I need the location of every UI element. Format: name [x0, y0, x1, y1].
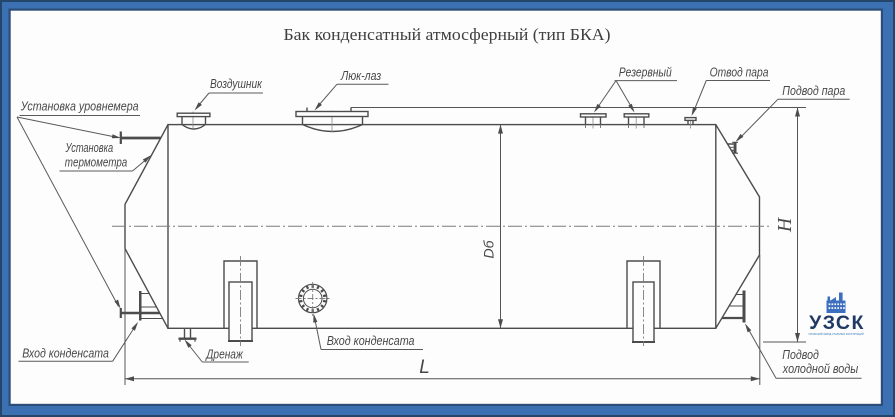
svg-text:Вход конденсата: Вход конденсата	[327, 334, 415, 348]
svg-text:Dб: Dб	[481, 239, 497, 258]
svg-text:Люк-лаз: Люк-лаз	[340, 70, 382, 83]
svg-text:Воздушник: Воздушник	[210, 78, 262, 91]
svg-text:Отвод пара: Отвод пара	[710, 66, 769, 79]
svg-text:Установка уровнемера: Установка уровнемера	[20, 100, 139, 114]
svg-text:Подвод: Подвод	[782, 348, 819, 362]
svg-text:Дренаж: Дренаж	[205, 349, 244, 362]
svg-text:УРАЛЬСКИЙ ЗАВОД СТАЛЬНЫХ КОНСТ: УРАЛЬСКИЙ ЗАВОД СТАЛЬНЫХ КОНСТРУКЦИЙ	[808, 333, 863, 336]
svg-text:холодной воды: холодной воды	[782, 362, 859, 376]
svg-text:УЗСК: УЗСК	[809, 312, 865, 334]
svg-text:Резервный: Резервный	[619, 66, 673, 79]
svg-text:L: L	[419, 357, 430, 378]
svg-text:H: H	[775, 217, 796, 233]
svg-text:Установка: Установка	[65, 142, 113, 156]
svg-text:Подвод пара: Подвод пара	[782, 85, 845, 98]
svg-text:Бак конденсатный атмосферный (: Бак конденсатный атмосферный (тип БКА)	[284, 25, 611, 44]
svg-text:Вход конденсата: Вход конденсата	[22, 348, 109, 361]
svg-text:термометра: термометра	[65, 157, 127, 170]
